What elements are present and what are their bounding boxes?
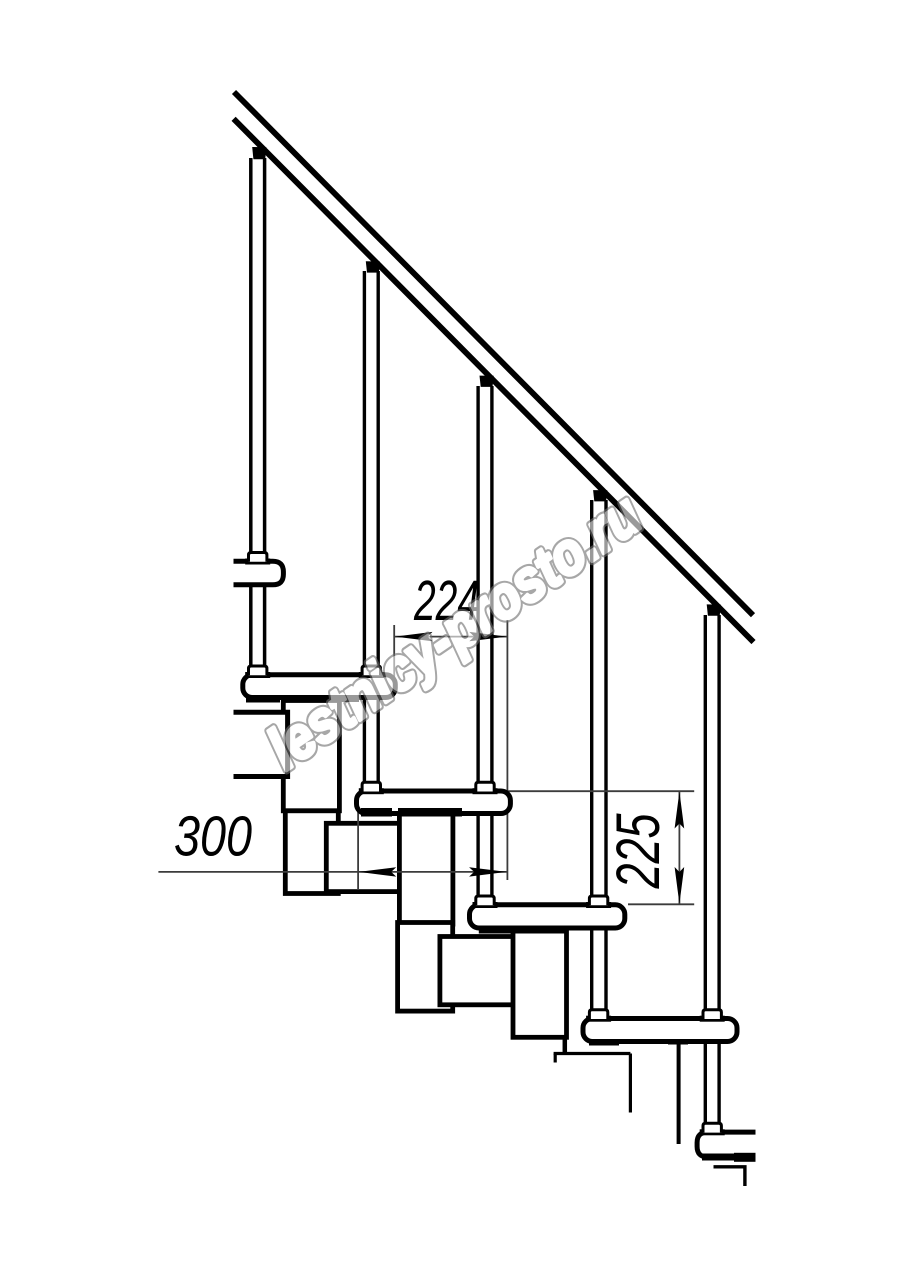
svg-text:300: 300 — [174, 805, 252, 869]
svg-text:225: 225 — [604, 813, 672, 890]
